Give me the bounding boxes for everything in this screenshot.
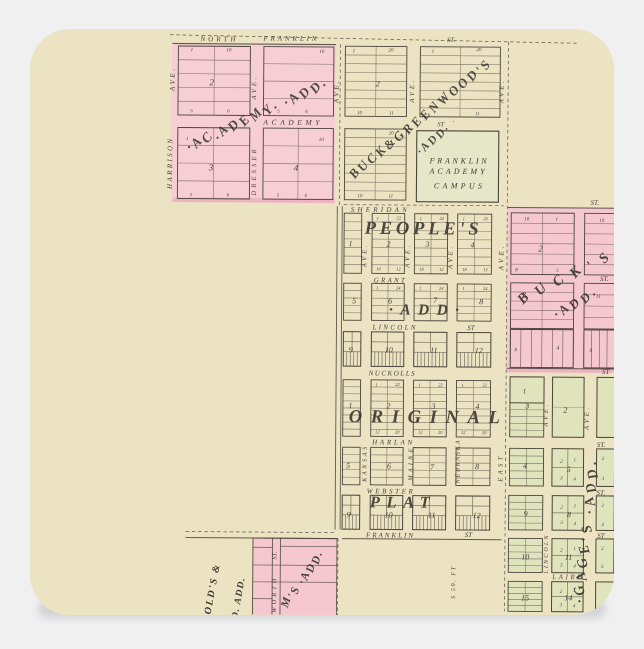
svg-text:11: 11 xyxy=(389,111,394,116)
svg-text:11: 11 xyxy=(428,511,435,520)
svg-text:4: 4 xyxy=(556,345,559,352)
svg-text:12: 12 xyxy=(418,430,423,435)
svg-text:18: 18 xyxy=(419,267,424,272)
svg-text:ST: ST xyxy=(465,531,474,539)
svg-text:22: 22 xyxy=(396,216,401,221)
svg-text:1: 1 xyxy=(191,48,194,53)
svg-text:11: 11 xyxy=(565,553,572,562)
svg-text:10: 10 xyxy=(226,48,232,53)
svg-text:ST.: ST. xyxy=(447,37,455,44)
svg-text:ST.: ST. xyxy=(600,275,609,283)
svg-text:24: 24 xyxy=(439,286,444,291)
svg-text:3: 3 xyxy=(425,240,430,249)
svg-text:ST.: ST. xyxy=(590,199,599,207)
svg-text:1: 1 xyxy=(461,383,463,388)
svg-text:1: 1 xyxy=(349,239,353,248)
svg-text:12: 12 xyxy=(461,430,466,435)
svg-text:1: 1 xyxy=(463,216,465,221)
svg-text:ST.: ST. xyxy=(597,441,606,449)
svg-text:1: 1 xyxy=(375,382,377,387)
svg-text:ST.: ST. xyxy=(271,551,278,559)
svg-text:20: 20 xyxy=(482,430,487,435)
svg-text:10: 10 xyxy=(319,138,325,143)
svg-text:2: 2 xyxy=(387,239,391,248)
svg-text:12: 12 xyxy=(439,267,444,272)
svg-text:2: 2 xyxy=(209,77,214,87)
svg-text:1: 1 xyxy=(573,547,576,552)
svg-text:4: 4 xyxy=(471,241,475,250)
svg-text:12: 12 xyxy=(475,346,483,355)
svg-text:10: 10 xyxy=(319,50,325,55)
svg-text:2: 2 xyxy=(538,244,543,254)
svg-text:1: 1 xyxy=(376,285,378,290)
svg-text:22: 22 xyxy=(438,382,443,387)
svg-text:2: 2 xyxy=(376,79,380,88)
svg-text:10: 10 xyxy=(385,345,393,354)
svg-text:10: 10 xyxy=(357,194,363,199)
svg-text:18: 18 xyxy=(376,266,381,271)
svg-text:1: 1 xyxy=(523,387,527,395)
svg-text:S 50. FT: S 50. FT xyxy=(451,566,457,599)
svg-text:4: 4 xyxy=(294,163,299,173)
svg-text:3: 3 xyxy=(525,402,530,410)
svg-text:·: · xyxy=(452,118,454,126)
svg-text:1: 1 xyxy=(555,218,558,223)
svg-text:4: 4 xyxy=(523,461,527,470)
svg-text:1: 1 xyxy=(432,50,435,55)
svg-text:1: 1 xyxy=(574,504,577,509)
svg-text:1: 1 xyxy=(377,216,379,221)
svg-text:22: 22 xyxy=(483,216,488,221)
svg-text:1: 1 xyxy=(573,459,576,464)
svg-text:1: 1 xyxy=(419,286,421,291)
svg-text:11: 11 xyxy=(475,112,480,117)
svg-text:HARRISON: HARRISON xyxy=(166,139,174,190)
svg-text:20: 20 xyxy=(476,48,482,53)
svg-text:ST: ST xyxy=(467,324,476,332)
svg-text:NORTH: NORTH xyxy=(199,35,236,43)
svg-text:1: 1 xyxy=(418,383,420,388)
svg-text:10: 10 xyxy=(599,219,605,224)
svg-text:ACADEMY: ACADEMY xyxy=(262,118,320,127)
svg-text:8: 8 xyxy=(475,462,479,471)
svg-text:12: 12 xyxy=(483,267,488,272)
svg-text:12: 12 xyxy=(473,511,481,520)
svg-text:MAINE: MAINE xyxy=(407,448,414,481)
svg-text:2: 2 xyxy=(386,401,390,410)
svg-text:10: 10 xyxy=(385,510,393,519)
svg-text:14: 14 xyxy=(564,593,572,602)
svg-text:11: 11 xyxy=(430,346,437,355)
svg-text:24: 24 xyxy=(396,286,401,291)
svg-text:20: 20 xyxy=(395,430,400,435)
svg-text:5: 5 xyxy=(567,465,571,474)
svg-text:ST: ST xyxy=(602,368,611,376)
svg-text:20: 20 xyxy=(388,48,394,53)
svg-text:11: 11 xyxy=(389,194,394,199)
svg-text:22: 22 xyxy=(482,383,487,388)
svg-text:1: 1 xyxy=(353,49,356,54)
svg-text:5: 5 xyxy=(352,296,356,305)
svg-text:9: 9 xyxy=(347,510,351,519)
svg-text:9: 9 xyxy=(524,509,528,518)
svg-text:24: 24 xyxy=(483,286,488,291)
svg-text:8: 8 xyxy=(567,510,571,519)
svg-text:2: 2 xyxy=(563,406,567,415)
svg-text:5: 5 xyxy=(346,461,350,470)
svg-text:10: 10 xyxy=(524,217,530,222)
svg-text:12: 12 xyxy=(375,429,380,434)
svg-text:6: 6 xyxy=(387,461,391,470)
svg-text:8: 8 xyxy=(479,297,483,306)
svg-text:10: 10 xyxy=(357,111,363,116)
svg-text:22: 22 xyxy=(439,216,444,221)
svg-text:22: 22 xyxy=(395,382,400,387)
svg-text:WORTH: WORTH xyxy=(271,578,278,612)
svg-text:3: 3 xyxy=(208,162,214,172)
svg-text:9: 9 xyxy=(349,345,353,354)
svg-text:20: 20 xyxy=(438,430,443,435)
svg-text:18: 18 xyxy=(462,267,467,272)
svg-text:1: 1 xyxy=(462,286,464,291)
svg-text:NUCKOLLS: NUCKOLLS xyxy=(368,369,416,377)
svg-text:10: 10 xyxy=(521,552,529,561)
svg-text:12: 12 xyxy=(396,267,401,272)
svg-text:1: 1 xyxy=(420,216,422,221)
svg-text:15: 15 xyxy=(521,593,529,602)
